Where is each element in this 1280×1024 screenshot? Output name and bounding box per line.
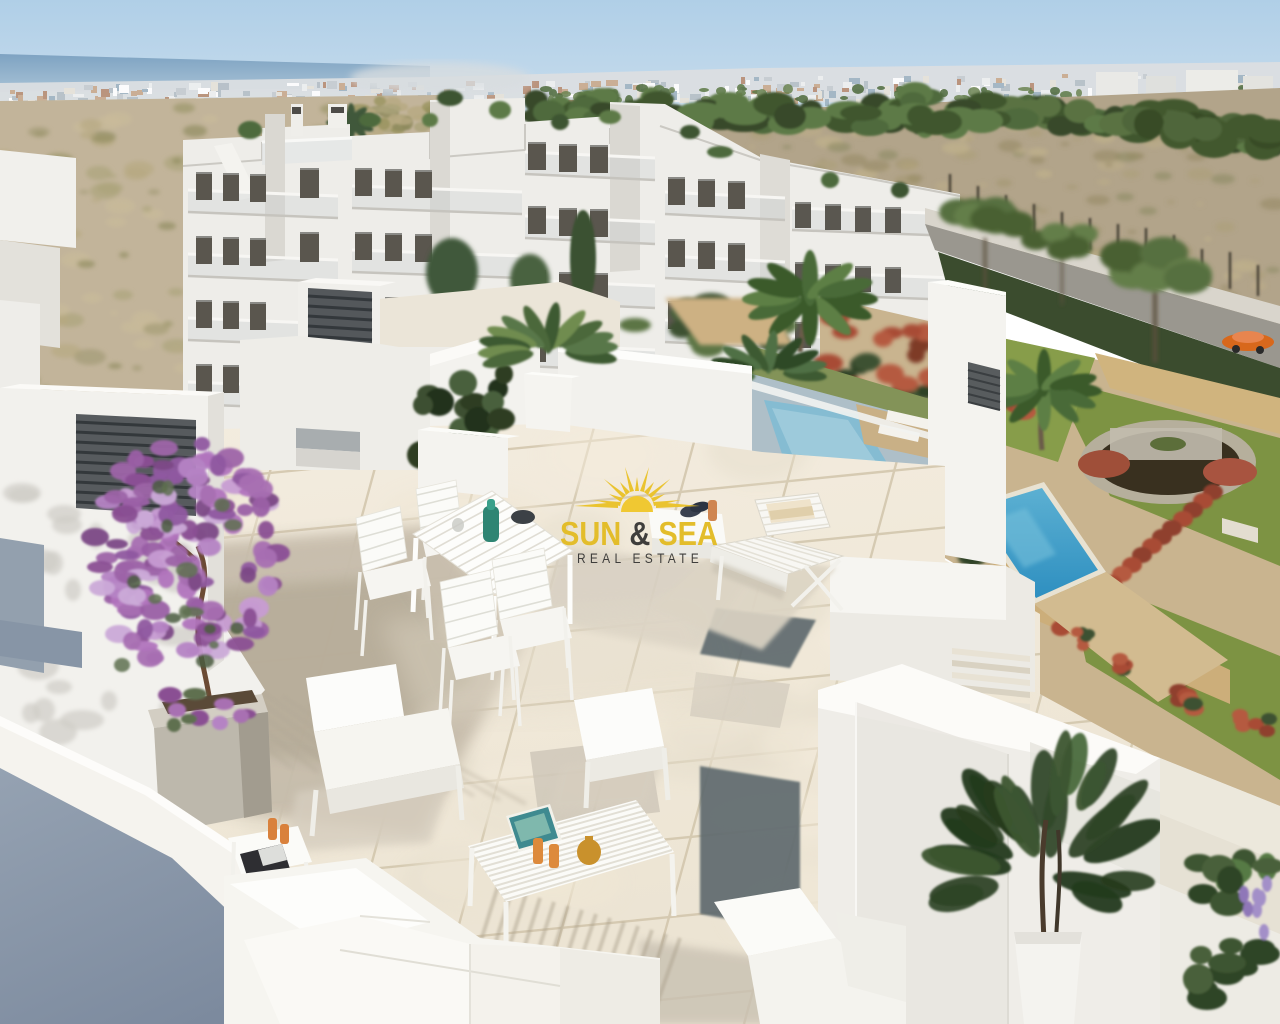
- svg-text:REAL ESTATE: REAL ESTATE: [577, 550, 703, 566]
- svg-text:SUN & SEA: SUN & SEA: [560, 515, 718, 552]
